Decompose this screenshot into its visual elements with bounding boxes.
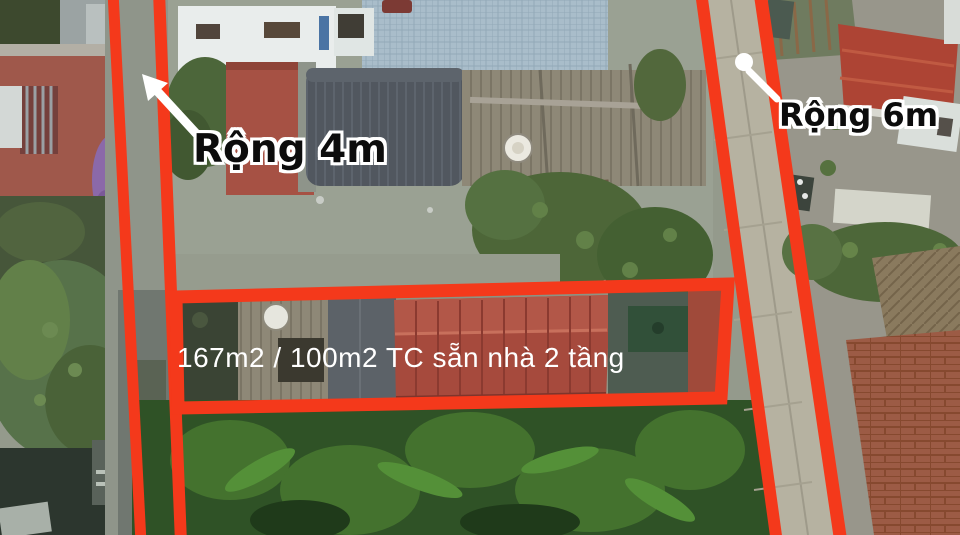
- banana-garden: [132, 400, 777, 535]
- property-area-label: 167m2 / 100m2 TC sẵn nhà 2 tầng: [177, 342, 625, 374]
- aerial-listing-image: Rộng 4m Rộng 6m 167m2 / 100m2 TC sẵn nhà…: [0, 0, 960, 535]
- aerial-photo-background: [0, 0, 960, 535]
- road-width-label-6m: Rộng 6m: [779, 96, 938, 134]
- road-width-label-4m: Rộng 4m: [193, 127, 387, 172]
